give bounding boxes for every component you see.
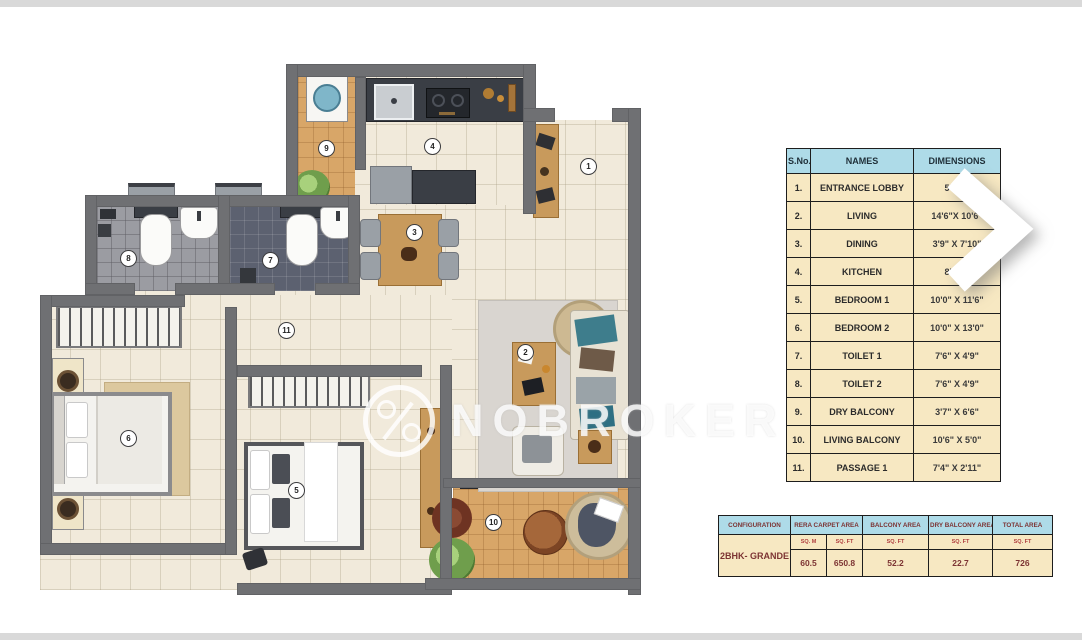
burner	[451, 94, 464, 107]
cell: 7'6" X 4'9"	[914, 342, 1001, 370]
room-marker: 3	[406, 224, 423, 241]
cell: TOILET 2	[811, 370, 914, 398]
console-decor	[540, 167, 549, 176]
table-row: 7.TOILET 17'6" X 4'9"	[787, 342, 1001, 370]
side-table	[578, 430, 612, 464]
next-arrow-icon[interactable]	[942, 166, 1038, 294]
dining-chair	[360, 252, 381, 280]
top-letterbox	[0, 0, 1082, 7]
cell: PASSAGE 1	[811, 454, 914, 482]
stove	[426, 88, 470, 118]
sofa-cushion	[579, 347, 615, 371]
counter-decor	[497, 95, 504, 102]
dry-balcony-sqft-value: 22.7	[929, 550, 993, 577]
cell: KITCHEN	[811, 258, 914, 286]
wall	[175, 283, 275, 295]
bottom-letterbox	[0, 633, 1082, 640]
headboard	[54, 396, 65, 484]
unit-label: SQ. FT	[863, 535, 929, 550]
header-balcony-area: BALCONY AREA	[863, 516, 929, 535]
cell: DRY BALCONY	[811, 398, 914, 426]
table-decor	[522, 377, 545, 396]
cell: DINING	[811, 230, 914, 258]
room-marker: 8	[120, 250, 137, 267]
unit-label: SQ. FT	[993, 535, 1053, 550]
room-marker: 11	[278, 322, 295, 339]
duvet	[304, 442, 338, 542]
hanging-chair	[565, 492, 633, 560]
wall	[286, 64, 536, 77]
wall	[225, 307, 237, 555]
rera-sqm-value: 60.5	[791, 550, 827, 577]
wall	[443, 478, 641, 488]
fridge	[412, 170, 476, 204]
screenshot-stage: 1 2 3 4 5 6 7 8 9 10 11 NOBROKER S.No. N…	[0, 0, 1082, 640]
cell: 4.	[787, 258, 811, 286]
table-decor	[401, 247, 417, 261]
counter-decor	[483, 88, 494, 99]
wall	[218, 195, 230, 295]
wall	[85, 283, 135, 295]
cell: 6.	[787, 314, 811, 342]
room-marker: 9	[318, 140, 335, 157]
wall	[40, 295, 52, 555]
lamp	[57, 370, 79, 392]
table-row: 11.PASSAGE 17'4" X 2'11"	[787, 454, 1001, 482]
pillow	[272, 454, 290, 484]
bed	[50, 392, 172, 496]
header-configuration: CONFIGURATION	[719, 516, 791, 535]
wall	[523, 64, 536, 214]
dining-chair	[438, 252, 459, 280]
burner	[432, 94, 445, 107]
configuration-value: 2BHK- GRANDE	[719, 535, 791, 577]
wall	[628, 108, 641, 595]
cell: 3'7" X 6'6"	[914, 398, 1001, 426]
sofa-cushion	[579, 405, 615, 429]
units-row: 2BHK- GRANDE SQ. M SQ. FT SQ. FT SQ. FT …	[719, 535, 1053, 550]
pillow	[250, 450, 270, 490]
table-row: 9.DRY BALCONY3'7" X 6'6"	[787, 398, 1001, 426]
sofa-cushion	[576, 377, 616, 404]
cell: 10.	[787, 426, 811, 454]
dresser-decor	[427, 427, 435, 435]
cell: LIVING BALCONY	[811, 426, 914, 454]
header-names: NAMES	[811, 149, 914, 174]
round-table	[523, 510, 568, 555]
pillow	[66, 442, 88, 478]
wall	[523, 108, 555, 122]
sink-drain	[391, 98, 397, 104]
wall	[425, 578, 641, 590]
balcony-sqft-value: 52.2	[863, 550, 929, 577]
cell: 2.	[787, 202, 811, 230]
armchair-cushion	[522, 435, 552, 463]
cell: BEDROOM 1	[811, 286, 914, 314]
wardrobe	[56, 306, 182, 348]
dining-chair	[438, 219, 459, 247]
wall	[85, 195, 97, 295]
configuration-area-table: CONFIGURATION RERA CARPET AREA BALCONY A…	[718, 515, 1053, 577]
pillow	[272, 498, 290, 528]
rera-sqft-value: 650.8	[827, 550, 863, 577]
shower-drain	[240, 268, 256, 284]
sofa	[570, 310, 630, 440]
lamp	[57, 498, 79, 520]
dining-chair	[360, 219, 381, 247]
total-sqft-value: 726	[993, 550, 1053, 577]
wall	[348, 195, 360, 295]
header-rera-carpet-area: RERA CARPET AREA	[791, 516, 863, 535]
room-marker: 7	[262, 252, 279, 269]
shower-head	[100, 209, 116, 219]
console-decor	[536, 187, 556, 204]
cell: 7'4" X 2'11"	[914, 454, 1001, 482]
cell: BEDROOM 2	[811, 314, 914, 342]
table-row: 6.BEDROOM 210'0" X 13'0"	[787, 314, 1001, 342]
wall	[40, 295, 185, 307]
table-row: 8.TOILET 27'6" X 4'9"	[787, 370, 1001, 398]
kitchen-platform	[370, 166, 412, 204]
cell: TOILET 1	[811, 342, 914, 370]
wall	[237, 583, 452, 595]
wall	[237, 365, 422, 377]
washbasin	[180, 207, 218, 239]
basin-tap	[336, 211, 340, 221]
room-marker: 10	[485, 514, 502, 531]
table-header-row: CONFIGURATION RERA CARPET AREA BALCONY A…	[719, 516, 1053, 535]
room-marker: 4	[424, 138, 441, 155]
cell: 3.	[787, 230, 811, 258]
washing-machine	[306, 74, 348, 122]
cell: LIVING	[811, 202, 914, 230]
table-decor	[542, 365, 550, 373]
plant	[429, 538, 475, 582]
cell: 1.	[787, 174, 811, 202]
cell: 9.	[787, 398, 811, 426]
cell: 11.	[787, 454, 811, 482]
shower-drain	[98, 224, 111, 237]
header-total-area: TOTAL AREA	[993, 516, 1053, 535]
unit-label: SQ. FT	[929, 535, 993, 550]
cell: 7.	[787, 342, 811, 370]
wall	[355, 77, 366, 170]
unit-label: SQ. FT	[827, 535, 863, 550]
cell: ENTRANCE LOBBY	[811, 174, 914, 202]
room-marker: 1	[580, 158, 597, 175]
header-sno: S.No.	[787, 149, 811, 174]
console-table	[533, 124, 559, 218]
plant	[432, 498, 472, 538]
toilet-wc	[140, 214, 172, 266]
toilet-wc	[286, 214, 318, 266]
table-decor	[588, 440, 601, 453]
cell: 7'6" X 4'9"	[914, 370, 1001, 398]
cell: 8.	[787, 370, 811, 398]
kitchen-sink	[374, 84, 414, 120]
room-marker: 6	[120, 430, 137, 447]
room-marker: 2	[517, 344, 534, 361]
stove-knobs	[439, 112, 455, 115]
armchair	[512, 426, 564, 476]
console-decor	[535, 133, 555, 151]
pillow	[66, 402, 88, 438]
wall	[40, 543, 235, 555]
sofa-cushion	[574, 314, 617, 346]
pillow	[250, 494, 270, 534]
counter-decor	[508, 84, 516, 112]
bed	[244, 442, 364, 550]
cell: 5.	[787, 286, 811, 314]
table-row: 10.LIVING BALCONY10'6" X 5'0"	[787, 426, 1001, 454]
header-dry-balcony-area: DRY BALCONY AREA	[929, 516, 993, 535]
room-marker: 5	[288, 482, 305, 499]
wall	[286, 64, 298, 204]
unit-label: SQ. M	[791, 535, 827, 550]
washing-machine-drum	[313, 84, 341, 112]
wall	[315, 283, 360, 295]
cell: 10'0" X 13'0"	[914, 314, 1001, 342]
cell: 10'6" X 5'0"	[914, 426, 1001, 454]
basin-tap	[197, 211, 201, 221]
